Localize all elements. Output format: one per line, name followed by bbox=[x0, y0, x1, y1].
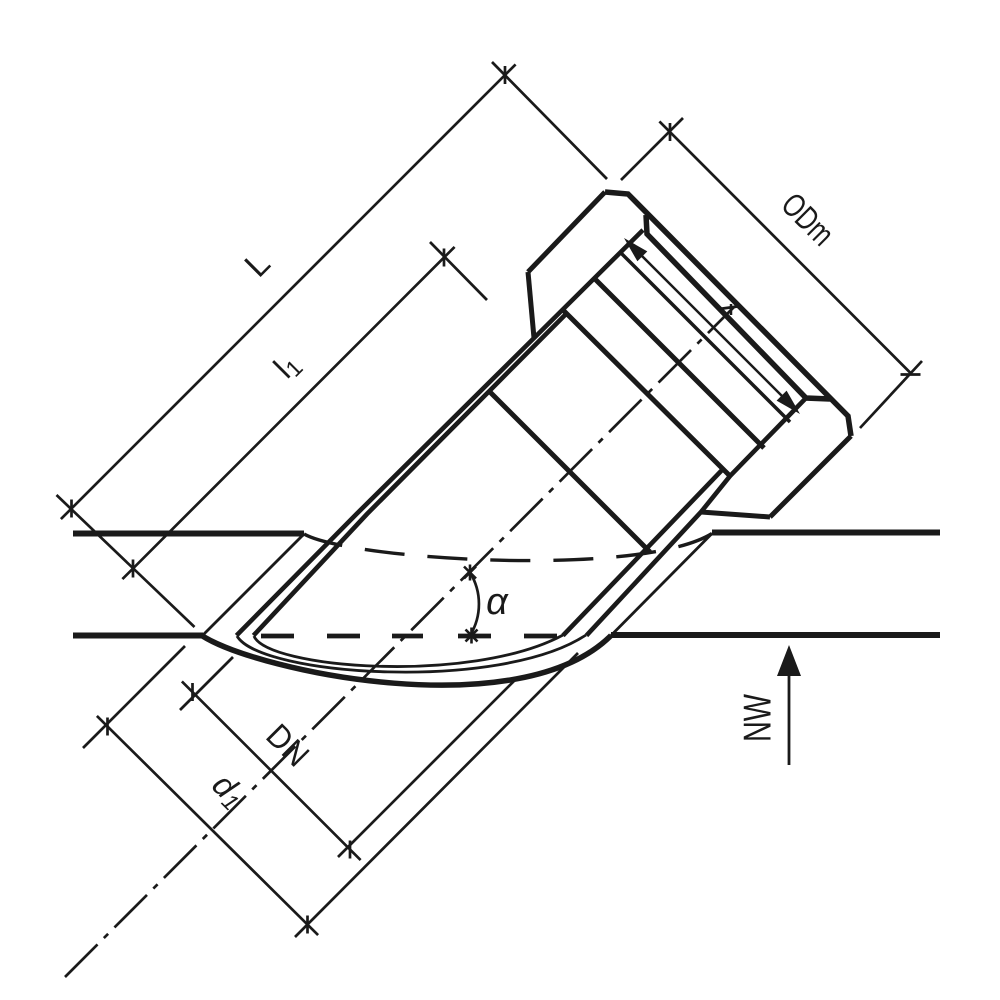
svg-text:d1: d1 bbox=[204, 766, 254, 816]
svg-text:NW: NW bbox=[736, 694, 779, 742]
svg-text:L: L bbox=[237, 244, 277, 284]
svg-text:α: α bbox=[486, 581, 509, 623]
svg-text:l1: l1 bbox=[266, 345, 307, 386]
svg-text:DN: DN bbox=[259, 716, 316, 773]
svg-text:ODm: ODm bbox=[774, 185, 841, 252]
